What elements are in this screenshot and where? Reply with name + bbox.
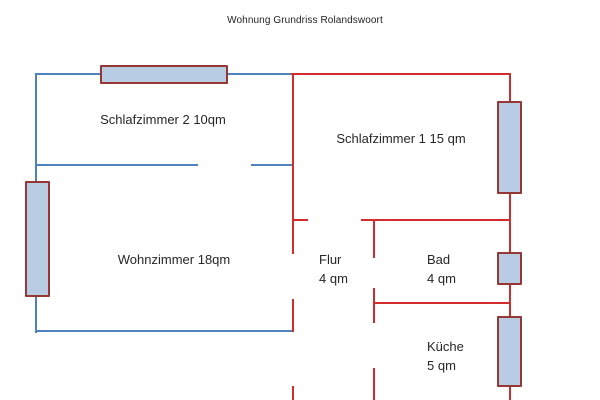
label-wohnzimmer: Wohnzimmer 18qm xyxy=(74,252,274,268)
wall-interior-schlafzimmer2-left xyxy=(35,164,198,167)
label-flur-area: 4 qm xyxy=(319,269,348,288)
label-schlafzimmer1: Schlafzimmer 1 15 qm xyxy=(301,131,501,147)
wall-flur-top-stub xyxy=(292,219,308,222)
window-schlafzimmer1 xyxy=(497,101,522,194)
label-kueche-area: 5 qm xyxy=(427,356,464,375)
wall-bad-top xyxy=(361,219,511,222)
wall-exterior-top-right xyxy=(291,73,511,76)
wall-exterior-bottom-left xyxy=(35,330,294,333)
wall-interior-schlafzimmer2-right xyxy=(251,164,294,167)
wall-divider-center-lower xyxy=(292,386,295,400)
label-flur-name: Flur xyxy=(319,250,348,269)
page-title: Wohnung Grundriss Rolandswoort xyxy=(0,15,600,26)
wall-flur-kueche-divider xyxy=(373,368,376,400)
label-schlafzimmer2: Schlafzimmer 2 10qm xyxy=(63,112,263,128)
window-kueche xyxy=(497,316,522,387)
label-bad-area: 4 qm xyxy=(427,269,456,288)
wall-bad-kueche-divider xyxy=(373,302,511,305)
floor-plan: Wohnung Grundriss Rolandswoort Schlafzim… xyxy=(0,0,600,400)
window-wohnzimmer xyxy=(25,181,50,297)
label-flur: Flur 4 qm xyxy=(319,250,348,288)
label-bad-name: Bad xyxy=(427,250,456,269)
label-bad: Bad 4 qm xyxy=(427,250,456,288)
wall-flur-bad-divider-lower xyxy=(373,288,376,323)
label-kueche: Küche 5 qm xyxy=(427,337,464,375)
wall-divider-center-middle xyxy=(292,299,295,332)
wall-divider-center-upper xyxy=(292,73,295,254)
window-bad xyxy=(497,252,522,285)
wall-flur-bad-divider-upper xyxy=(373,219,376,258)
window-schlafzimmer2 xyxy=(100,65,228,84)
label-kueche-name: Küche xyxy=(427,337,464,356)
